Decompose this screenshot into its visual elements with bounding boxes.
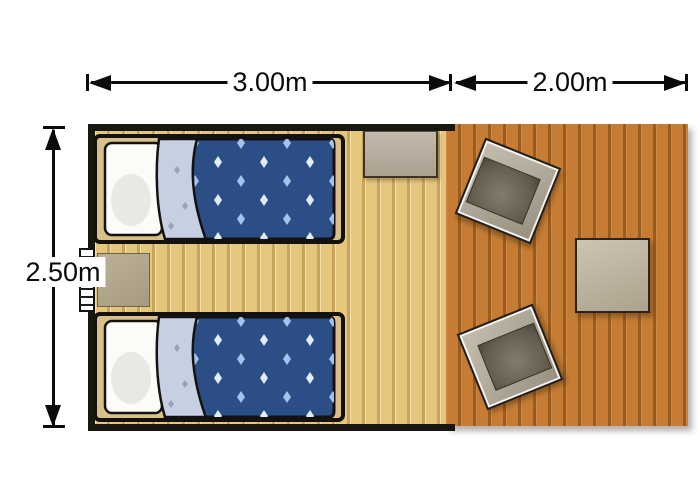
chair-seat [477,323,552,391]
dim-tick [449,74,452,91]
room-depth-label: 2.50m [20,257,105,287]
floorplan-canvas: 3.00m 2.00m 2.50m [0,0,700,500]
bed-drawing [93,312,345,422]
bed-drawing [93,134,345,244]
bedroom-width-label: 3.00m [227,67,312,97]
dim-arrow-down [45,405,61,427]
side-table [363,131,438,178]
pillow-shading [111,174,151,226]
pillow-shading [111,352,151,404]
dim-arrow-right [664,75,686,91]
dim-tick [685,74,688,91]
deck-width-label: 2.00m [527,67,612,97]
chair-seat [466,157,541,225]
coffee-table [575,238,650,313]
single-bed-bottom [93,312,345,422]
dim-tick [43,425,65,428]
single-bed-top [93,134,345,244]
dim-arrow-right [429,75,451,91]
